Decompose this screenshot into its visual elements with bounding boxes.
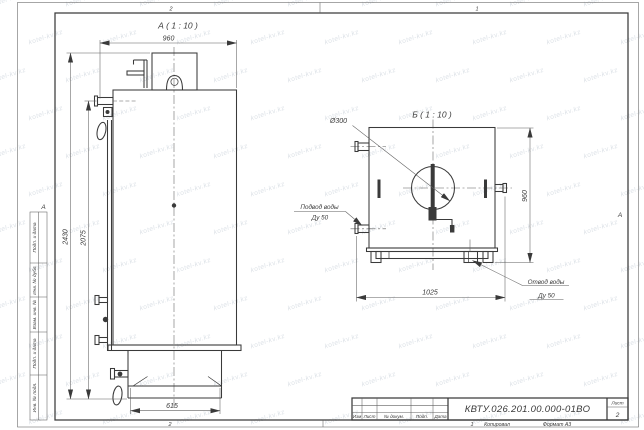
zone-top-1: 1 bbox=[475, 7, 478, 13]
drawing-sheet: kotel-kv.kzkotel-kv.kzkotel-kv.kzkotel-k… bbox=[0, 0, 644, 430]
margin-column: Подп. и дата Инв. № дубл. Взам. инв. № П… bbox=[30, 212, 47, 420]
dim-base-615: 615 bbox=[166, 403, 178, 410]
margin-row-1: Инв. № дубл. bbox=[32, 265, 38, 295]
boiler-base-rear bbox=[367, 240, 498, 263]
view-a-title: А ( 1 : 10 ) bbox=[157, 21, 198, 31]
margin-row-0: Подп. и дата bbox=[32, 222, 38, 252]
sheet-col-label: Лист bbox=[610, 401, 623, 407]
margin-row-3: Подп. и дата bbox=[32, 338, 38, 368]
dim-height-960: 960 bbox=[522, 190, 529, 202]
view-a-dimensions: 960 2430 2075 615 bbox=[63, 36, 237, 415]
fold-mark-right: А bbox=[617, 212, 622, 219]
margin-row-2: Взам. инв. № bbox=[32, 300, 38, 330]
format-label: Формат А3 bbox=[543, 422, 571, 428]
outlet-fitting bbox=[464, 252, 478, 263]
boiler-body-side bbox=[113, 90, 237, 345]
tb-col-izm: Изм bbox=[353, 414, 362, 419]
zone-top-2: 2 bbox=[168, 7, 172, 13]
tb-col-data: Дата bbox=[433, 414, 447, 419]
margin-row-4: Инв. № подл. bbox=[32, 383, 38, 413]
zone-bottom-1: 1 bbox=[470, 422, 473, 428]
lifting-lug bbox=[167, 76, 183, 91]
chimney-box bbox=[152, 53, 197, 90]
drawing-designation: КВТУ.026.201.00.000-01ВО bbox=[465, 404, 591, 415]
tb-col-dokum: № докум. bbox=[384, 414, 404, 419]
dim-width-1025: 1025 bbox=[422, 290, 438, 297]
door-handle-ring-top bbox=[96, 122, 108, 141]
dim-height-2430: 2430 bbox=[63, 229, 70, 246]
door-handle-ring-bottom bbox=[112, 385, 123, 405]
drawing-canvas: 2 1 2 1 Копировал Формат А3 А А Подп. и … bbox=[0, 0, 644, 430]
door-fittings bbox=[95, 96, 138, 406]
dim-width-960: 960 bbox=[163, 36, 175, 43]
dim-height-2075: 2075 bbox=[81, 230, 88, 247]
dim-diameter-300: Ø300 bbox=[329, 118, 347, 125]
inlet-label-line2: Ду 50 bbox=[311, 215, 329, 222]
outlet-label-line1: Отвод воды bbox=[528, 278, 565, 286]
weld-tick-left bbox=[378, 180, 381, 199]
zone-bottom-2: 2 bbox=[167, 422, 171, 428]
weld-point-marker bbox=[172, 203, 176, 207]
damper-handle bbox=[429, 164, 455, 233]
sheet-number: 2 bbox=[615, 412, 620, 419]
tb-col-list: Лист bbox=[363, 414, 376, 419]
chimney-piping bbox=[127, 60, 147, 88]
view-a: А ( 1 : 10 ) bbox=[63, 21, 242, 415]
view-b-title: Б ( 1 : 10 ) bbox=[412, 110, 452, 120]
fold-mark-left: А bbox=[40, 204, 45, 211]
tb-col-podp: Подп. bbox=[416, 414, 428, 419]
inlet-label: Подвод воды Ду 50 bbox=[294, 203, 362, 226]
door-knob bbox=[103, 317, 108, 322]
outlet-label-line2: Ду 50 bbox=[537, 293, 555, 300]
weld-tick-right bbox=[484, 180, 487, 199]
inlet-label-line1: Подвод воды bbox=[300, 203, 339, 211]
title-block: Изм Лист № докум. Подп. Дата КВТУ.026.20… bbox=[352, 398, 628, 420]
copied-label: Копировал bbox=[484, 422, 510, 428]
outlet-label: Отвод воды Ду 50 bbox=[473, 261, 570, 300]
pipe-stub-inlet bbox=[355, 224, 369, 234]
view-b: Б ( 1 : 10 ) bbox=[294, 110, 569, 302]
